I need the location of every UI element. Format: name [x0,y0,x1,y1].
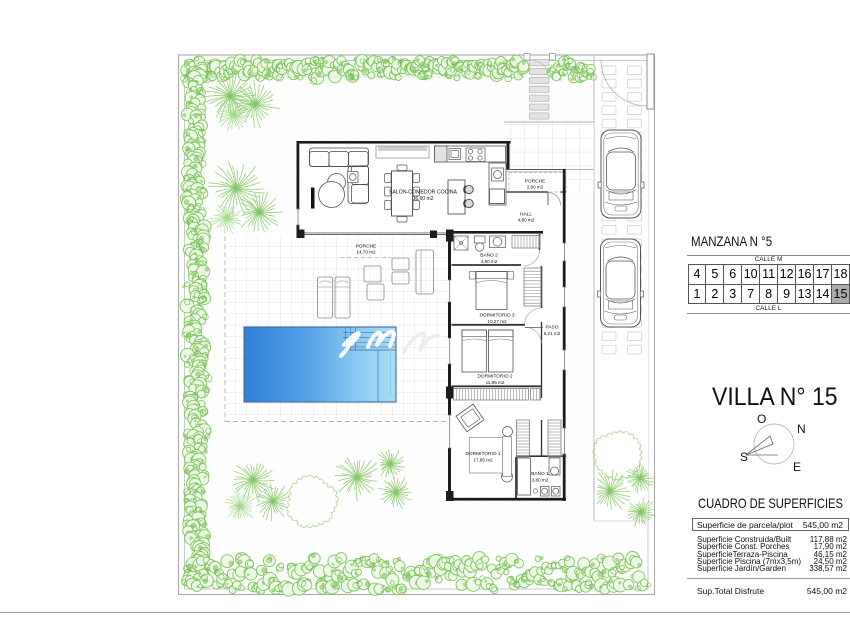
svg-text:14,70 m2: 14,70 m2 [356,250,376,255]
svg-text:N: N [797,422,806,436]
svg-text:BAÑO 1: BAÑO 1 [531,470,549,477]
svg-text:10,27 m2: 10,27 m2 [487,319,507,324]
svg-text:BAÑO 2: BAÑO 2 [480,252,498,259]
svg-text:6,21 m2: 6,21 m2 [544,331,561,336]
svg-text:DORMITORIO 1: DORMITORIO 1 [465,451,500,457]
svg-text:O: O [757,412,766,426]
svg-text:2,80 m2: 2,80 m2 [527,185,544,190]
svg-text:DORMITORIO 3: DORMITORIO 3 [479,313,514,319]
svg-text:SALON-COMEDOR COCINA: SALON-COMEDOR COCINA [389,190,458,196]
svg-text:S: S [740,450,748,464]
svg-text:11,95 m2: 11,95 m2 [486,380,505,385]
svg-text:E: E [793,460,801,474]
svg-text:36,60 m2: 36,60 m2 [413,196,434,202]
svg-text:DORMITORIO 2: DORMITORIO 2 [477,374,512,380]
svg-text:4,80 m2: 4,80 m2 [518,218,535,223]
svg-text:4,80 m2: 4,80 m2 [481,259,498,264]
svg-text:3,80 m2: 3,80 m2 [532,478,549,483]
svg-text:17,85 m2: 17,85 m2 [473,458,493,463]
svg-text:PASO: PASO [546,325,559,331]
